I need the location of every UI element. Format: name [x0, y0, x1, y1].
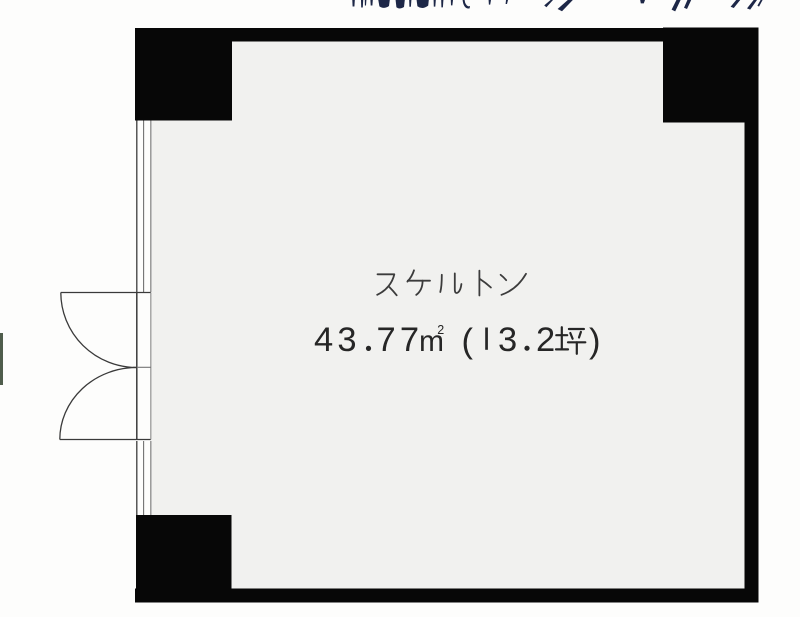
svg-text:43: 43	[314, 321, 361, 359]
svg-text:3: 3	[498, 321, 517, 359]
svg-text:2: 2	[437, 323, 444, 337]
svg-text:77: 77	[377, 321, 424, 359]
svg-text:2: 2	[536, 321, 555, 359]
svg-text:): )	[589, 322, 601, 360]
svg-text:(: (	[462, 322, 474, 360]
